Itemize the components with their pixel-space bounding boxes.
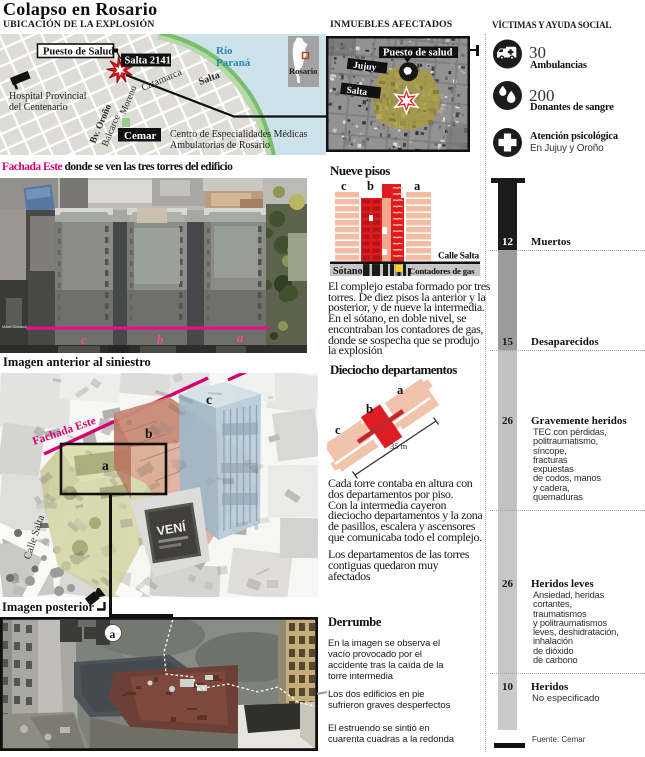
svg-text:Rosario: Rosario <box>289 66 317 76</box>
svg-text:a: a <box>110 629 116 641</box>
svg-text:35 m: 35 m <box>390 441 408 451</box>
svg-text:a: a <box>414 179 421 193</box>
svg-text:c: c <box>81 333 87 347</box>
svg-text:Río: Río <box>216 45 233 57</box>
svg-text:b: b <box>367 179 374 193</box>
svg-text:Centro de Especialidades Médic: Centro de Especialidades Médicas <box>170 129 308 140</box>
svg-text:Hospital Provincial: Hospital Provincial <box>9 91 87 102</box>
svg-text:Mikel Clouard: Mikel Clouard <box>2 324 26 329</box>
svg-text:Contadores de gas: Contadores de gas <box>409 266 475 276</box>
svg-text:Paraná: Paraná <box>216 57 251 69</box>
svg-text:Calle Salta: Calle Salta <box>438 252 479 262</box>
svg-text:c: c <box>206 392 212 407</box>
svg-text:b: b <box>145 426 153 441</box>
svg-text:b: b <box>366 402 373 416</box>
svg-text:c: c <box>341 179 347 193</box>
svg-text:c: c <box>335 423 341 437</box>
svg-text:b: b <box>157 333 163 347</box>
svg-text:Salta 2141: Salta 2141 <box>125 56 171 67</box>
svg-text:Sótano: Sótano <box>333 266 362 277</box>
svg-text:a: a <box>237 331 243 345</box>
svg-text:a: a <box>102 458 109 473</box>
svg-text:a: a <box>397 383 404 397</box>
svg-text:Puesto de Salud: Puesto de Salud <box>43 47 114 58</box>
svg-text:Cemar: Cemar <box>124 130 156 142</box>
svg-text:Puesto de salud: Puesto de salud <box>383 48 453 59</box>
svg-text:del Centenario: del Centenario <box>9 102 68 113</box>
svg-text:Ambulatorias de Rosario: Ambulatorias de Rosario <box>170 140 270 151</box>
